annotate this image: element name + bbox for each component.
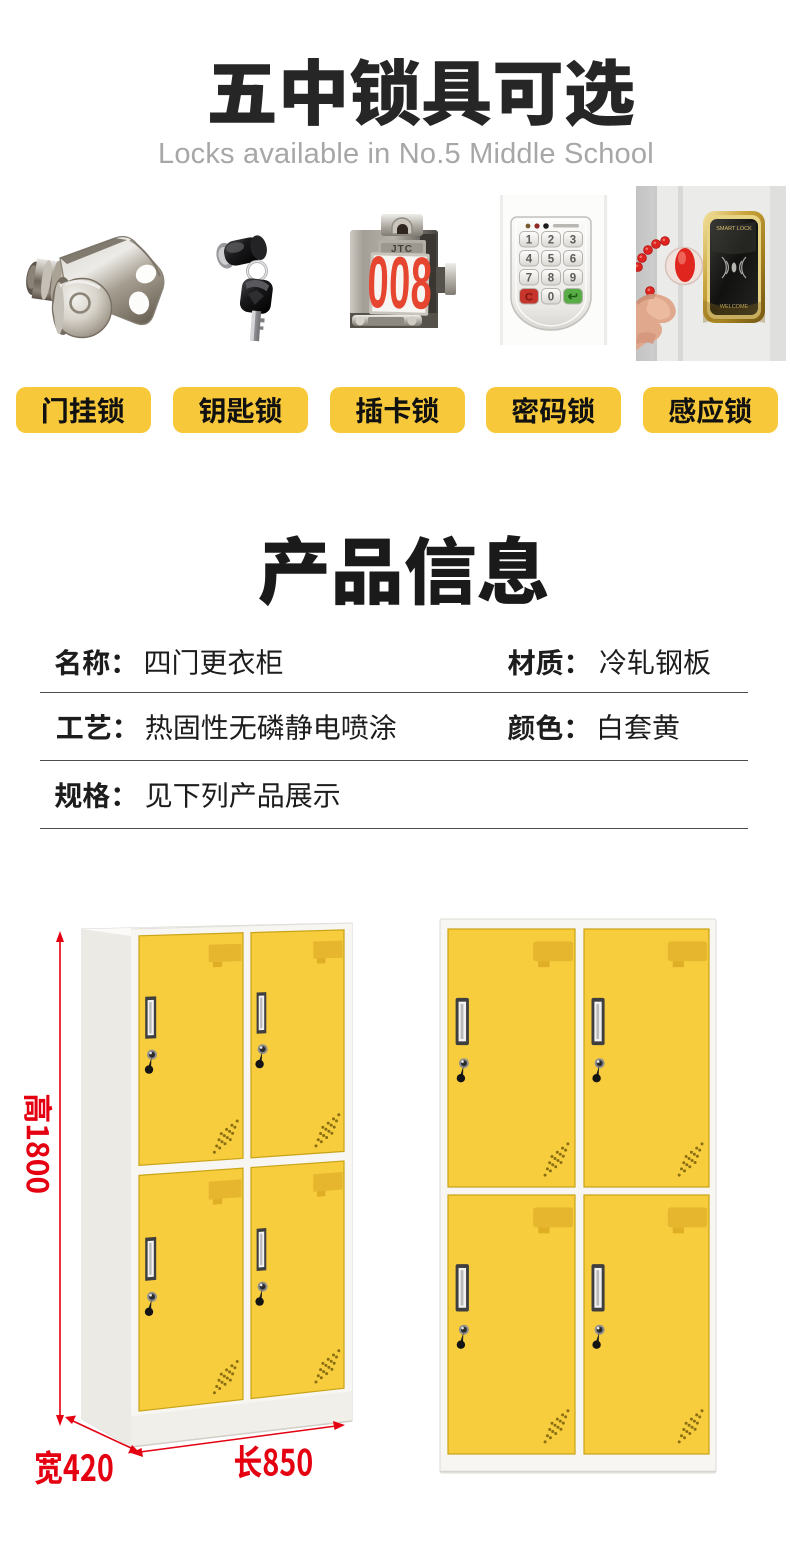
svg-text:0: 0 bbox=[548, 292, 554, 304]
svg-text:5: 5 bbox=[548, 254, 555, 266]
svg-text:C: C bbox=[525, 292, 533, 304]
svg-text:9: 9 bbox=[570, 273, 576, 285]
svg-text:3: 3 bbox=[570, 235, 576, 247]
svg-text:4: 4 bbox=[526, 254, 533, 266]
svg-text:8: 8 bbox=[548, 273, 555, 285]
svg-text:2: 2 bbox=[548, 235, 554, 247]
svg-text:1: 1 bbox=[526, 235, 533, 247]
svg-text:SMART LOCK: SMART LOCK bbox=[716, 226, 752, 232]
svg-text:6: 6 bbox=[570, 254, 576, 266]
svg-text:7: 7 bbox=[526, 273, 532, 285]
svg-text:008: 008 bbox=[366, 242, 433, 325]
